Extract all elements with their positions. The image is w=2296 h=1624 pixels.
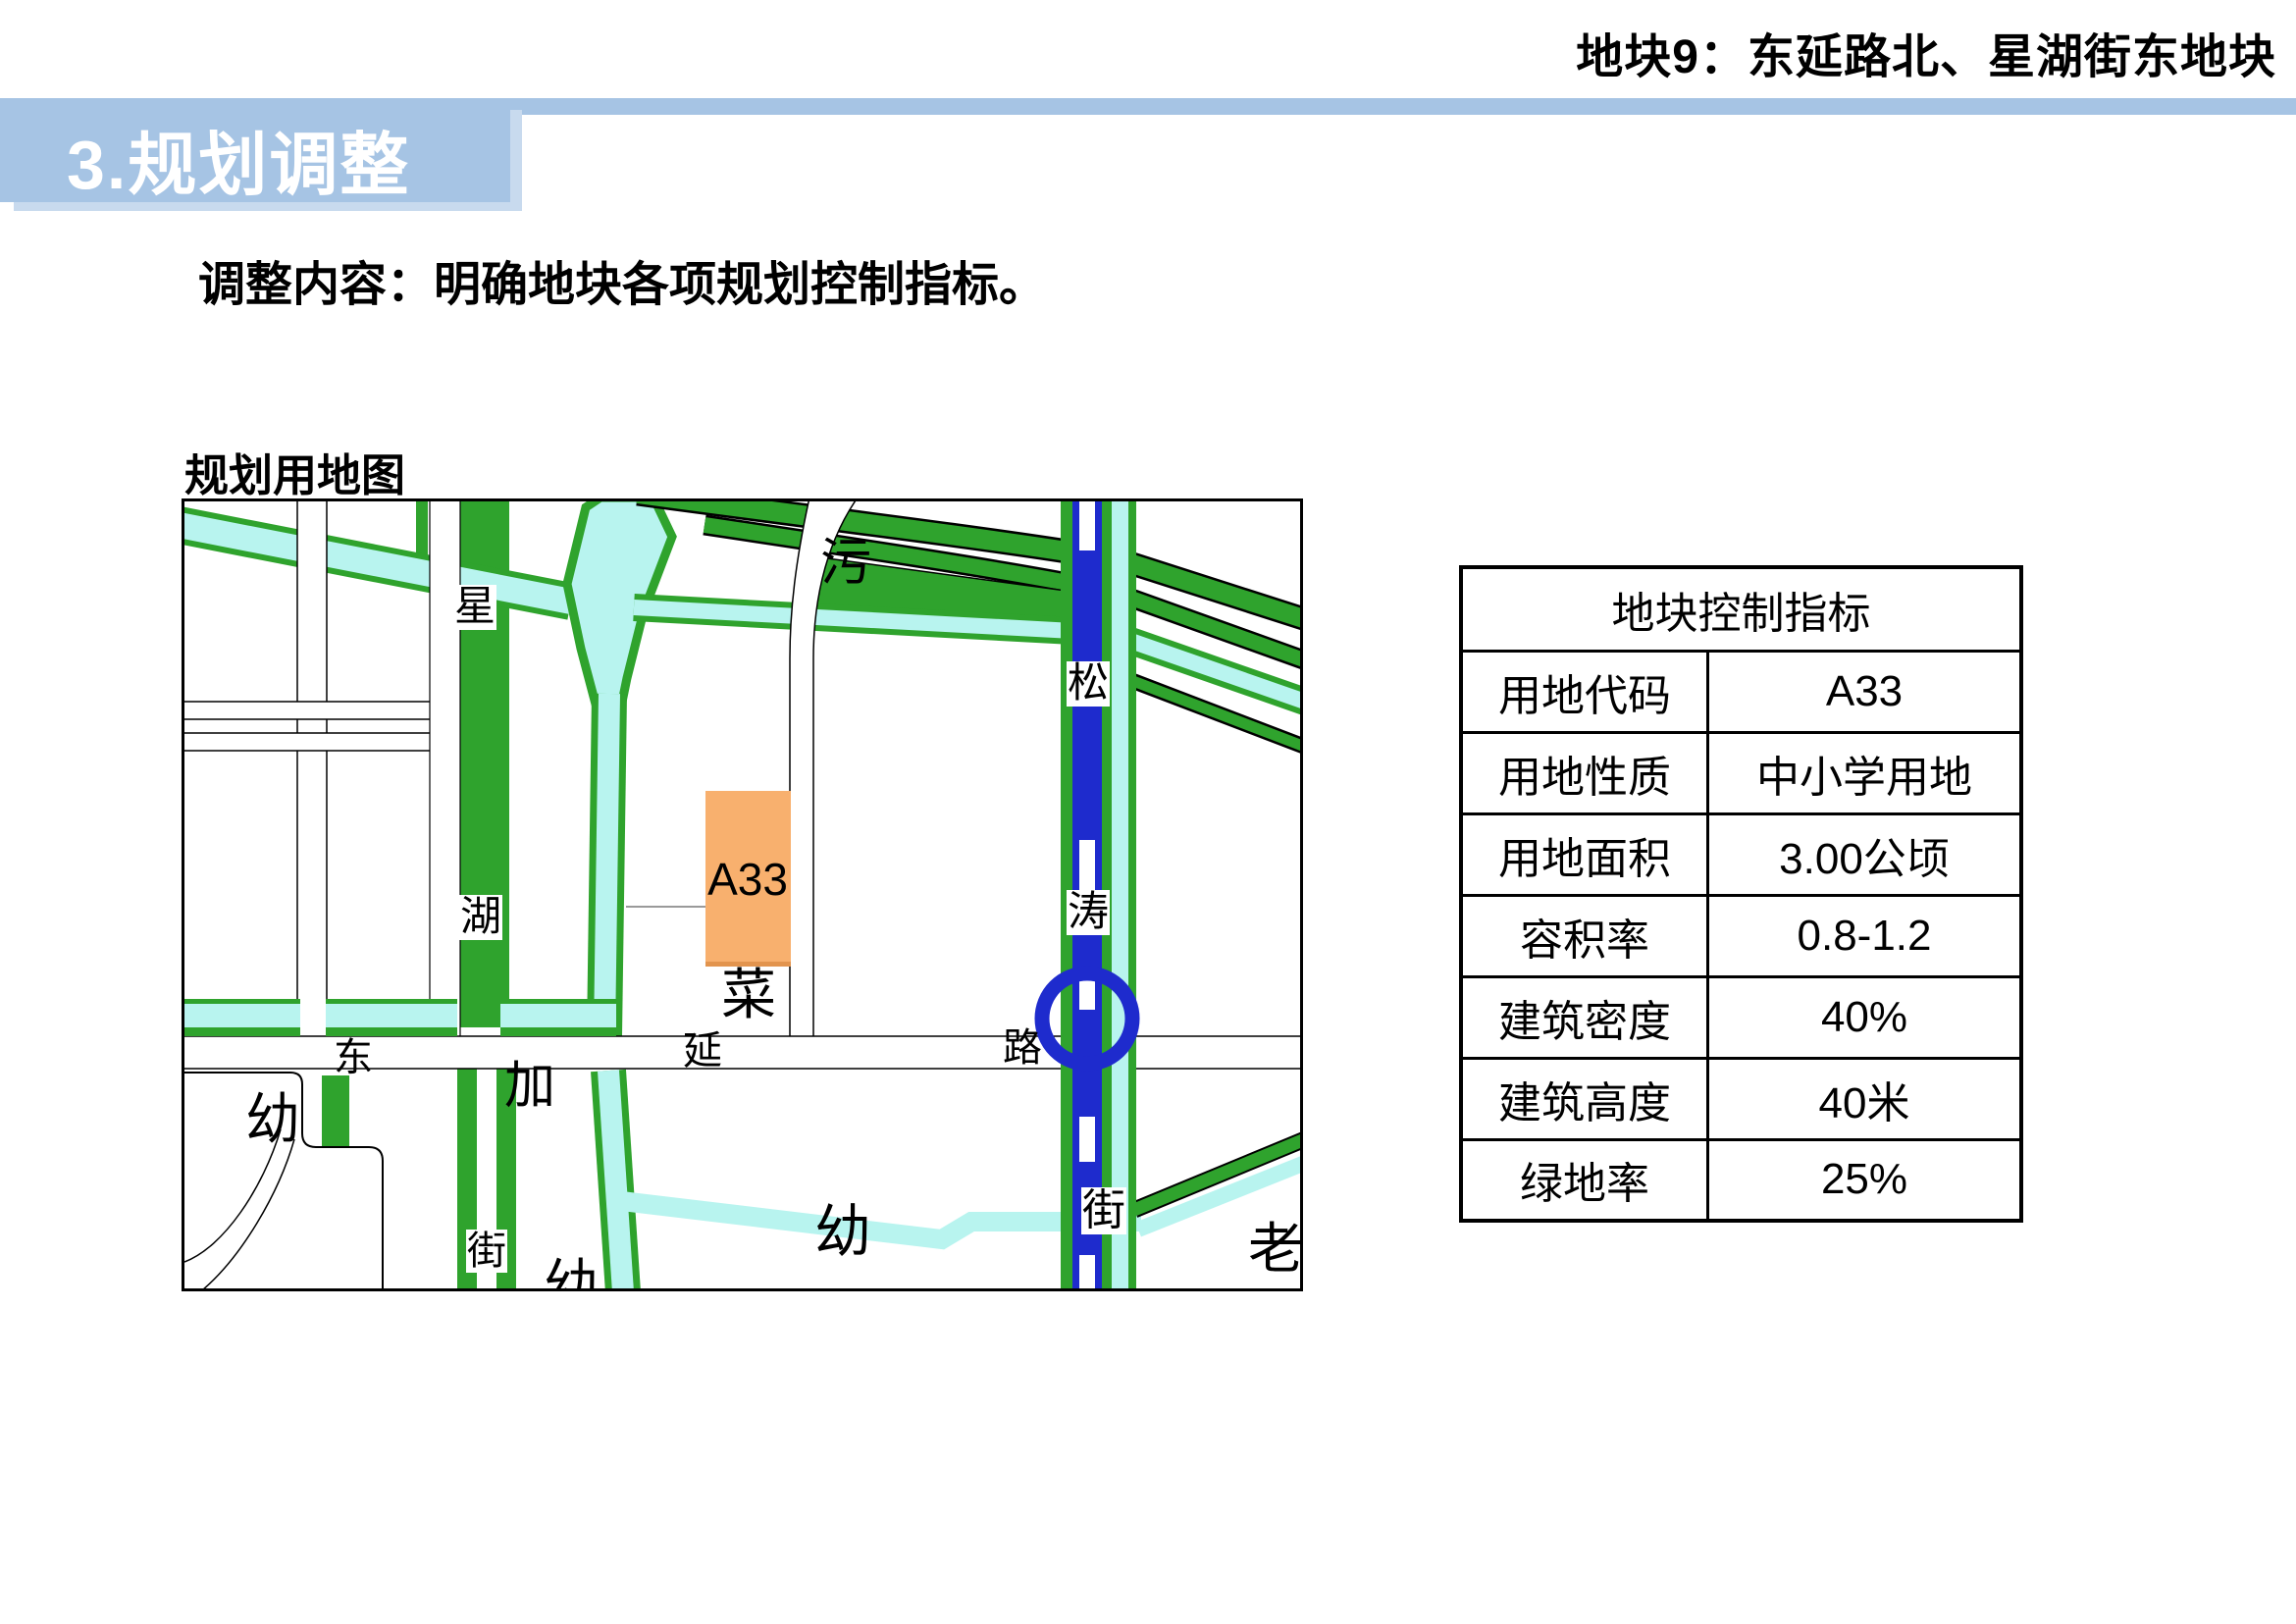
row-value: 25%: [1708, 1139, 2022, 1221]
map-label-xing: 星: [453, 585, 496, 630]
row-label: 用地代码: [1461, 651, 1708, 732]
page-title: 地块9：东延路北、星湖街东地块: [1511, 18, 2276, 86]
map-label-hu: 湖: [459, 895, 502, 940]
table-row: 绿地率 25%: [1461, 1139, 2021, 1221]
row-value: 40%: [1708, 976, 2022, 1058]
map-label-jie-songtao: 街: [1081, 1187, 1126, 1234]
section-title: 3.规划调整: [67, 110, 410, 209]
table-title: 地块控制指标: [1461, 567, 2021, 651]
row-value: 中小学用地: [1708, 732, 2022, 813]
table-row: 用地性质 中小学用地: [1461, 732, 2021, 813]
table-row: 用地代码 A33: [1461, 651, 2021, 732]
map-label-wu: 污: [820, 539, 871, 590]
map-label-yan: 延: [683, 1031, 722, 1071]
table-row: 建筑密度 40%: [1461, 976, 2021, 1058]
row-value: 0.8-1.2: [1708, 895, 2022, 976]
canal-topleft: [184, 525, 571, 602]
row-value: 3.00公顷: [1708, 813, 2022, 895]
canal-bottom: [613, 1139, 1300, 1239]
row-value: 40米: [1708, 1058, 2022, 1139]
map-label-jia: 加: [504, 1062, 555, 1113]
row-label: 用地面积: [1461, 813, 1708, 895]
map-label-cai: 菜: [720, 967, 777, 1025]
row-label: 建筑密度: [1461, 976, 1708, 1058]
slide: 地块9：东延路北、星湖街东地块 3.规划调整 调整内容：明确地块各项规划控制指标…: [0, 0, 2296, 1624]
table-row: 容积率 0.8-1.2: [1461, 895, 2021, 976]
row-label: 用地性质: [1461, 732, 1708, 813]
row-label: 建筑高度: [1461, 1058, 1708, 1139]
map-label-tao: 涛: [1067, 890, 1110, 935]
table-row: 建筑高度 40米: [1461, 1058, 2021, 1139]
map-label-lu: 路: [1003, 1028, 1042, 1068]
dongyan-north-belt: [184, 999, 616, 1036]
green-block-small: [322, 1075, 349, 1146]
parcel-a33-label: A33: [707, 857, 788, 902]
map-label-dong: 东: [334, 1038, 373, 1077]
row-label: 绿地率: [1461, 1139, 1708, 1221]
map-label-you-center: 幼: [814, 1204, 871, 1261]
planning-land-use-map: 星 湖 街 松 涛 街 东 延 路 污 菜 加 幼 幼 幼 老 A33: [182, 498, 1303, 1291]
adjustment-note: 调整内容：明确地块各项规划控制指标。: [198, 245, 1046, 314]
map-caption: 规划用地图: [184, 440, 405, 503]
map-label-jie-xinghu: 街: [466, 1230, 507, 1273]
plot-control-indicator-table: 地块控制指标 用地代码 A33 用地性质 中小学用地 用地面积 3.00公顷 容…: [1459, 565, 2023, 1223]
row-label: 容积率: [1461, 895, 1708, 976]
table-row: 用地面积 3.00公顷: [1461, 813, 2021, 895]
row-value: A33: [1708, 651, 2022, 732]
map-label-you-left: 幼: [245, 1093, 300, 1148]
map-label-song: 松: [1067, 661, 1110, 707]
map-label-you-bottom: 幼: [544, 1259, 599, 1291]
map-label-lao: 老: [1248, 1223, 1303, 1278]
